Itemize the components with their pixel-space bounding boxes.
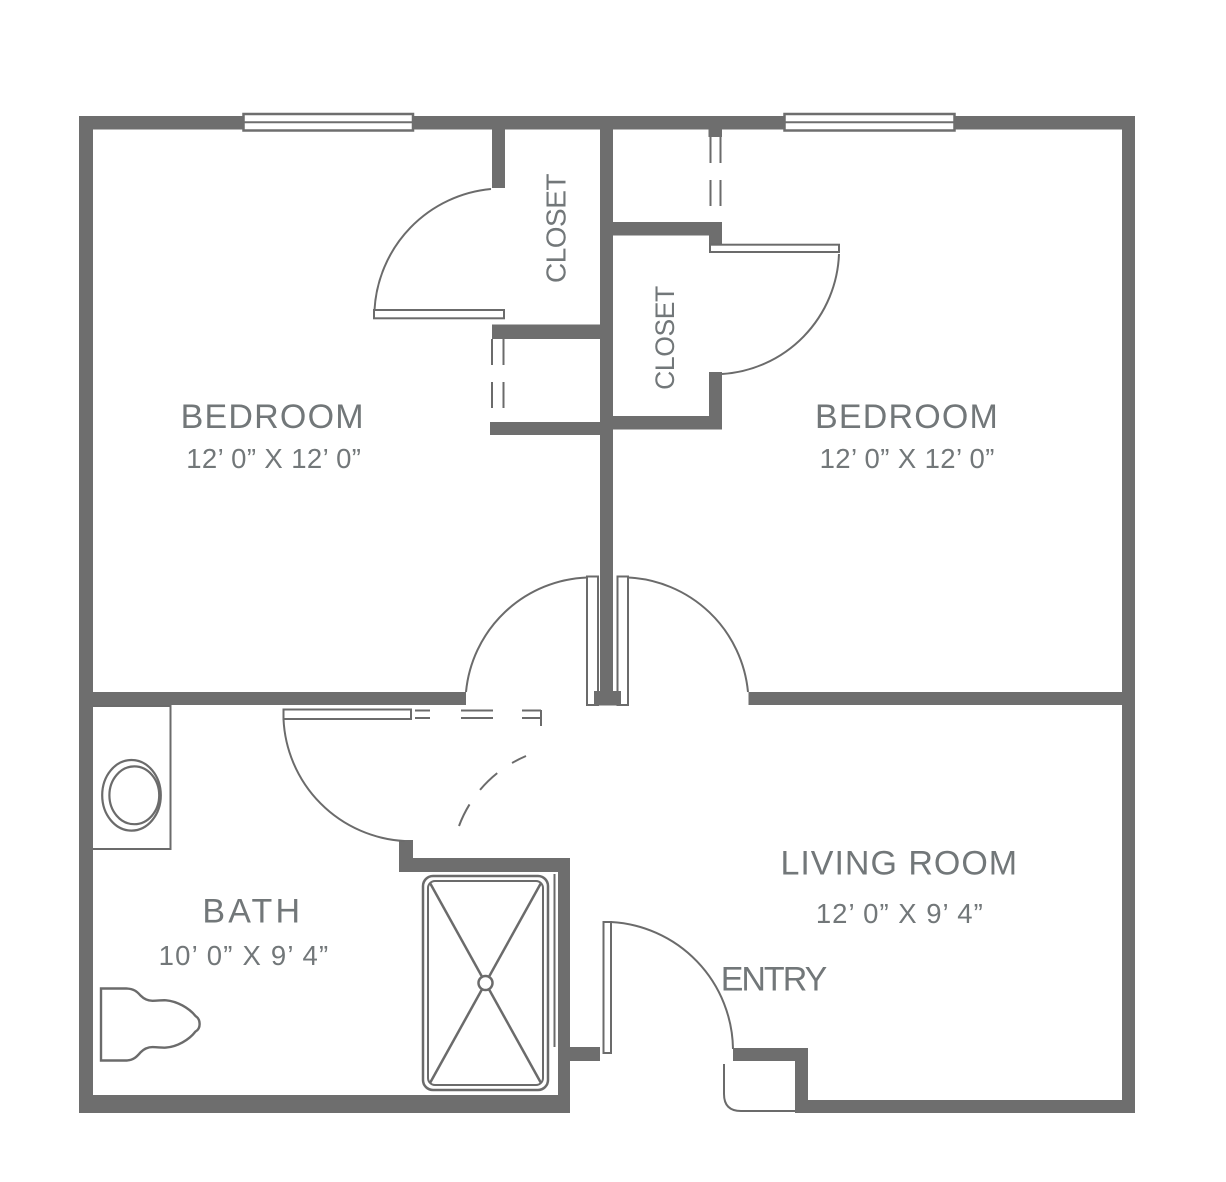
svg-text:BEDROOM: BEDROOM bbox=[181, 398, 365, 436]
svg-text:12’ 0” X 12’ 0”: 12’ 0” X 12’ 0” bbox=[820, 443, 995, 474]
svg-text:BEDROOM: BEDROOM bbox=[815, 398, 999, 436]
svg-text:CLOSET: CLOSET bbox=[541, 174, 572, 283]
svg-text:CLOSET: CLOSET bbox=[650, 286, 680, 390]
svg-text:12’ 0” X 12’ 0”: 12’ 0” X 12’ 0” bbox=[186, 443, 361, 474]
svg-text:ENTRY: ENTRY bbox=[721, 960, 827, 998]
svg-text:10’ 0” X 9’ 4”: 10’ 0” X 9’ 4” bbox=[159, 940, 330, 971]
svg-text:12’ 0” X 9’ 4”: 12’ 0” X 9’ 4” bbox=[816, 898, 984, 929]
svg-text:LIVING ROOM: LIVING ROOM bbox=[780, 845, 1018, 883]
svg-text:BATH: BATH bbox=[202, 892, 303, 930]
